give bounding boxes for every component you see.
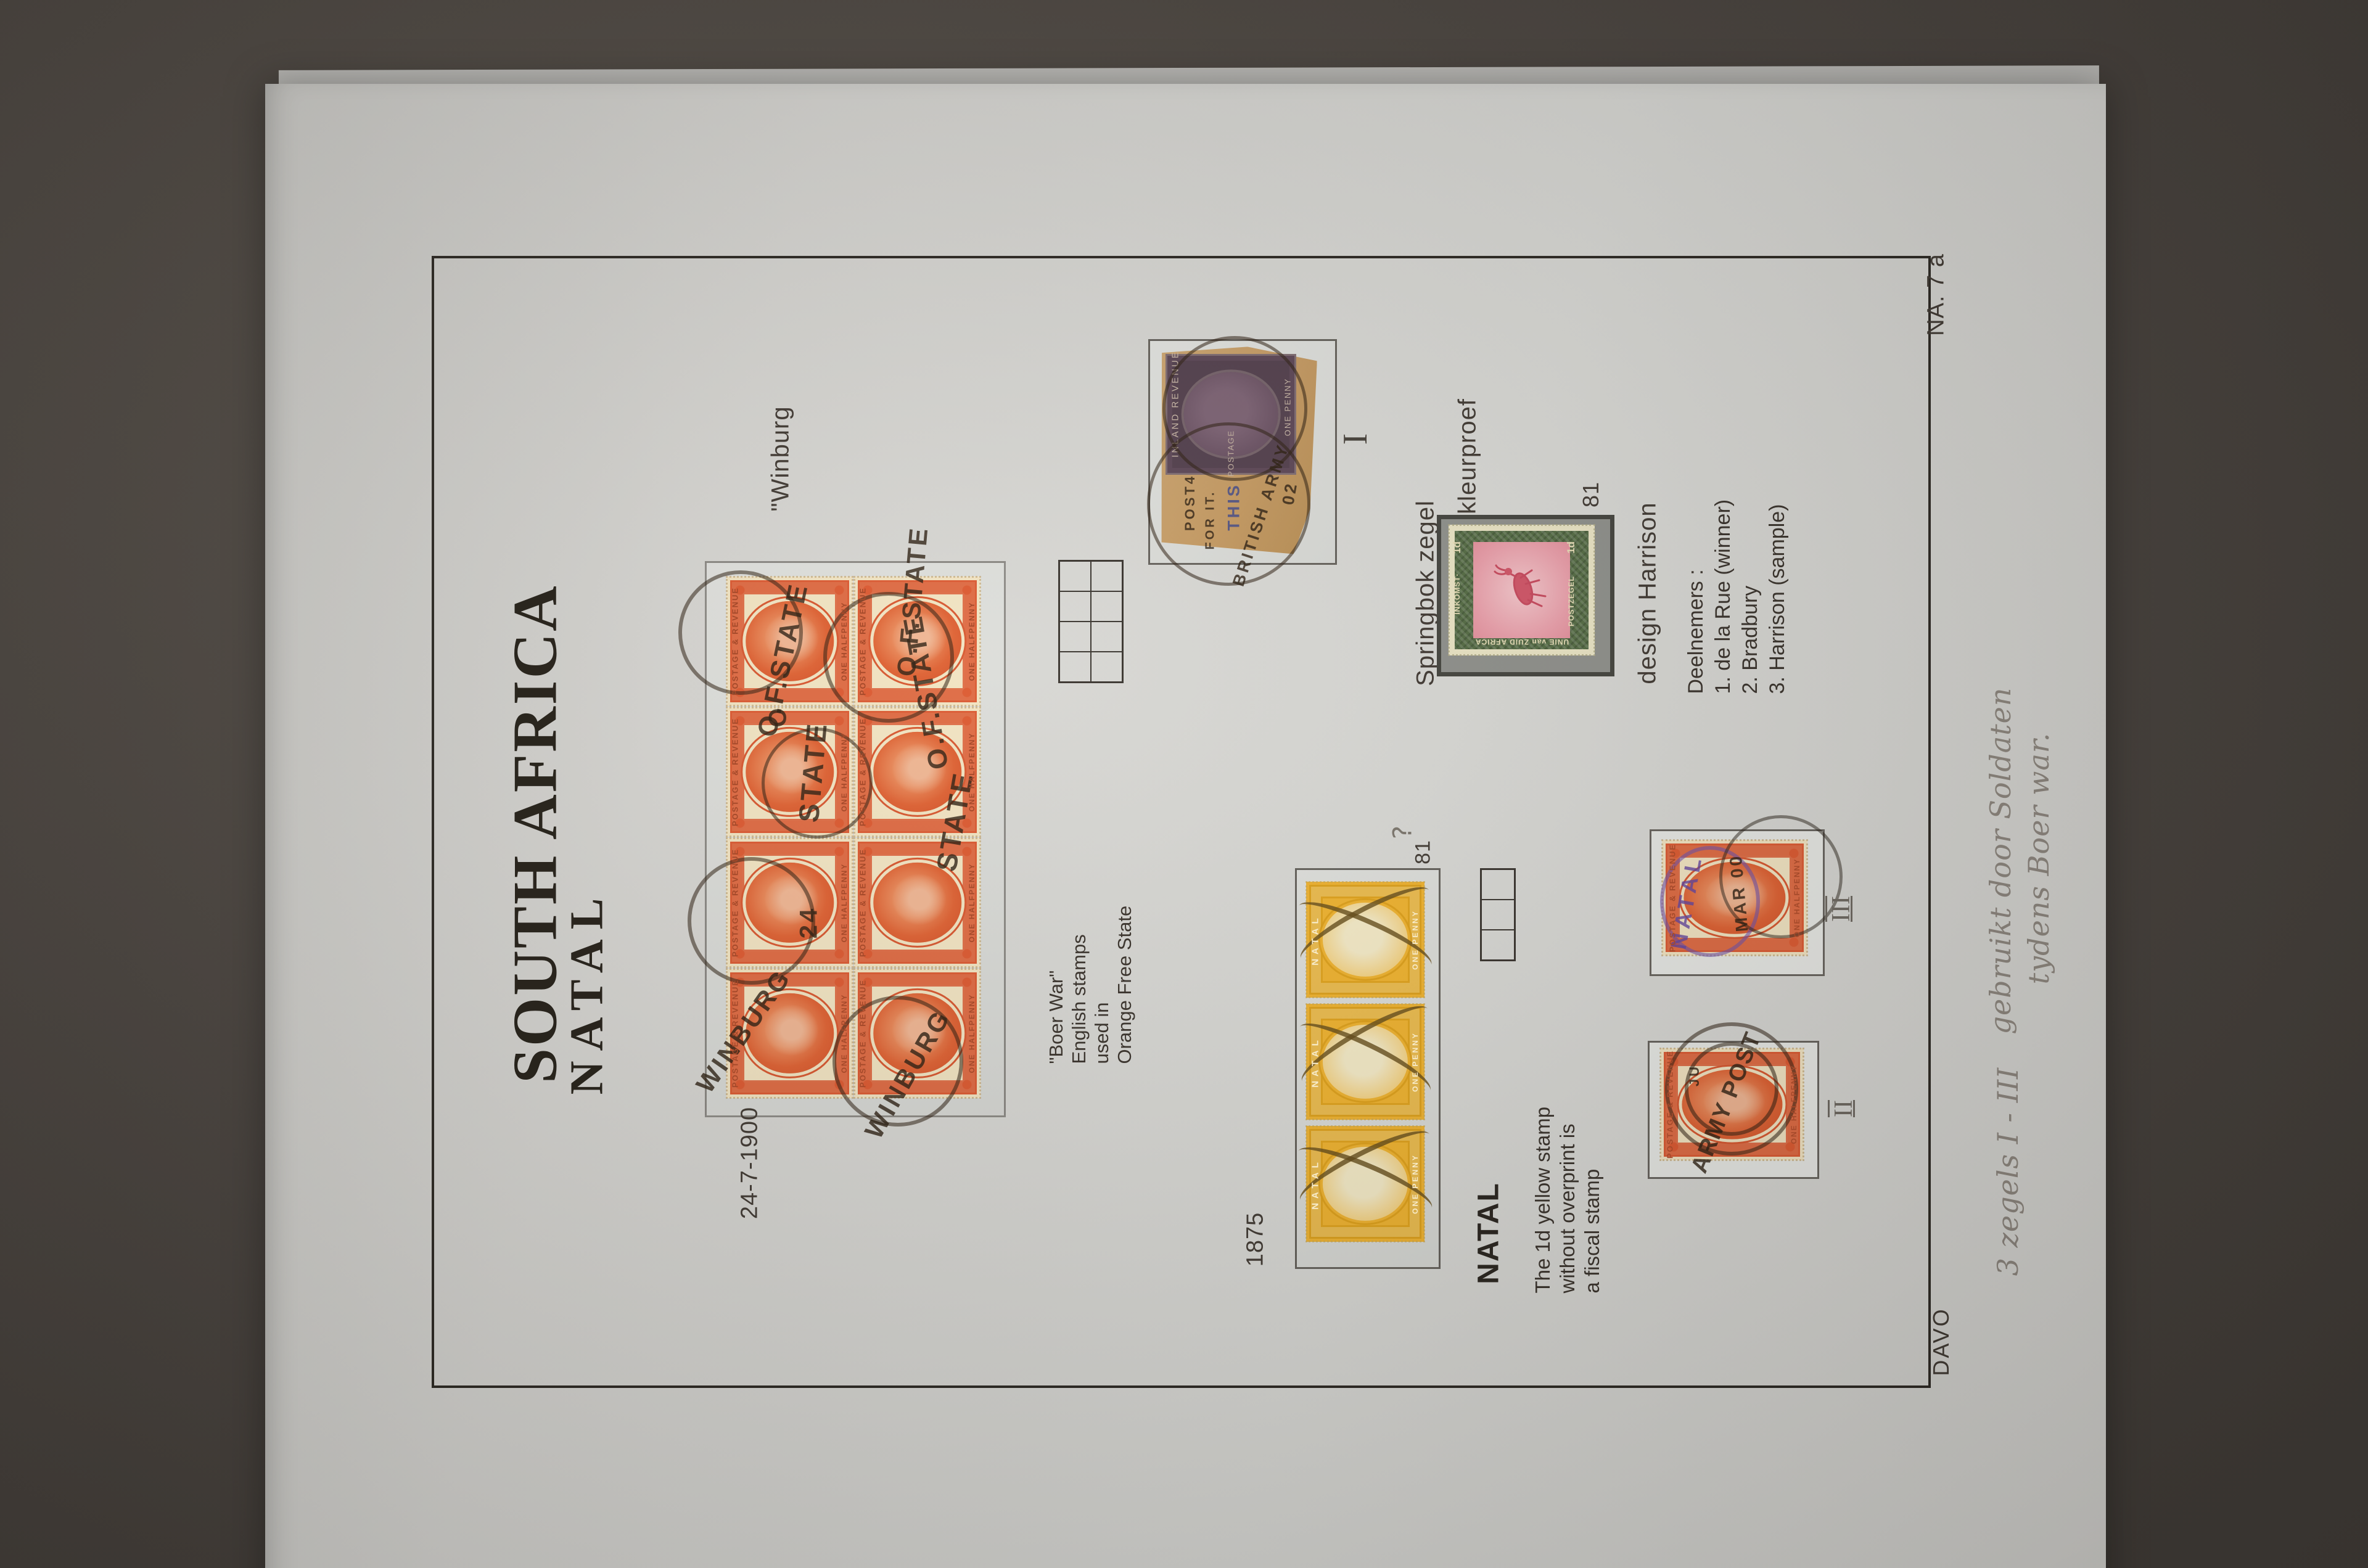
diagram-cell [1091, 622, 1122, 652]
cancel-text: 02 [1278, 480, 1301, 507]
springbok-zegel-label: Springbok zegel [1412, 500, 1440, 686]
cancel-text-blue: THIS [1225, 483, 1244, 531]
qv-inscription-bottom: ONE HALFPENNY [840, 994, 849, 1073]
qv-inscription-bottom: ONE HALFPENNY [1790, 1065, 1798, 1144]
qv-inscription-top: POSTAGE & REVENUE [858, 979, 868, 1088]
qv-inscription-top: POSTAGE & REVENUE [858, 848, 868, 957]
cancel-text: POST4 [1182, 474, 1198, 531]
diagram-cell [1481, 900, 1515, 930]
question-mark-pencil: ? [1387, 826, 1418, 839]
diagram-cell [1091, 561, 1122, 591]
qv-inscription-top: POSTAGE & REVENUE [1666, 1050, 1675, 1159]
yellow-value-text: ONE PENNY [1411, 1154, 1420, 1214]
springbok-bottom-text: UNIE van ZUID AFRICA [1474, 638, 1568, 646]
roman-numeral-ii: II [1829, 1100, 1859, 1117]
diagram-cell [1059, 591, 1091, 622]
qv-inscription-top: POSTAGE & REVENUE [731, 848, 740, 957]
cancel-text: JU [1687, 1064, 1703, 1086]
qv-inscription-bottom: ONE HALFPENNY [968, 733, 976, 812]
fiscal-note-line: without overprint is [1555, 1087, 1580, 1294]
qv-inscription-top: POSTAGE & REVENUE [731, 587, 740, 696]
springbok-right-text: POSTZEGEL [1567, 576, 1576, 626]
diagram-cell [1059, 652, 1091, 682]
springbok-stamp: 1d 1d INKOMST· POSTZEGEL UNIE van ZUID A… [1449, 525, 1595, 655]
diagram-cell [1059, 561, 1091, 591]
qv-inscription-bottom: ONE HALFPENNY [968, 863, 976, 943]
fiscal-note-line: a fiscal stamp [1580, 1087, 1605, 1294]
qv-inscription-top: POSTAGE & REVENUE [1667, 844, 1677, 952]
yellow-country-text: NATAL [1310, 1036, 1321, 1088]
springbok-value-right: 1d [1565, 541, 1577, 554]
qv-inscription-bottom: ONE HALFPENNY [840, 733, 849, 812]
catalog-number-81-strip: 81 [1412, 840, 1436, 864]
qv-inscription-bottom: ONE HALFPENNY [1793, 858, 1801, 938]
yellow-country-text: NATAL [1310, 1158, 1321, 1210]
design-harrison-label: design Harrison [1634, 502, 1662, 684]
deelnemers-heading: Deelnemers : [1682, 488, 1709, 694]
qv-inscription-top: POSTAGE & REVENUE [858, 718, 868, 826]
deelnemers-list: Deelnemers : 1. de la Rue (winner) 2. Br… [1682, 488, 1791, 694]
springbok-left-text: INKOMST· [1453, 573, 1461, 614]
diagram-cell [1059, 622, 1091, 652]
yellow-country-text: NATAL [1310, 914, 1321, 966]
diagram-cell [1481, 869, 1515, 900]
qv-inscription-bottom: ONE HALFPENNY [968, 602, 976, 681]
springbok-stamp-center [1473, 542, 1570, 638]
catalog-number-81: 81 [1578, 482, 1604, 507]
brand-imprint: DAVO [1928, 1307, 1954, 1376]
springbok-value-left: 1d [1451, 541, 1463, 554]
qv-inscription-bottom: ONE HALFPENNY [840, 863, 849, 943]
winburg-label: "Winburg [767, 406, 795, 511]
diagram-cell [1481, 930, 1515, 960]
boer-war-line: used in [1090, 895, 1113, 1064]
diagram-cell [1091, 652, 1122, 682]
page-subtitle: NATAL [561, 889, 614, 1095]
roman-numeral-i: I [1336, 433, 1375, 445]
handwriting-line1-start: 3 zegels I - III [1991, 1067, 2025, 1276]
block-arrangement-diagram [1058, 560, 1124, 683]
diagram-cell [1091, 591, 1122, 622]
handwriting-line2: tydens Boer war. [2022, 733, 2055, 985]
fiscal-note: The 1d yellow stamp without overprint is… [1531, 1087, 1605, 1294]
qv-inscription-top: POSTAGE & REVENUE [858, 587, 868, 696]
boer-war-line: English stamps [1067, 895, 1090, 1064]
deelnemers-item: 2. Bradbury [1737, 488, 1764, 694]
fiscal-note-line: The 1d yellow stamp [1531, 1087, 1555, 1294]
yellow-value-text: ONE PENNY [1411, 1032, 1420, 1092]
qv-inscription-top: POSTAGE & REVENUE [731, 979, 740, 1088]
kleurproef-label: kleurproef [1454, 398, 1482, 514]
deelnemers-item: 1. de la Rue (winner) [1709, 488, 1737, 694]
roman-numeral-iii: III [1827, 896, 1856, 922]
page-code: NA. 7 a [1923, 253, 1950, 336]
springbok-figure [1485, 559, 1559, 621]
qv-inscription-bottom: ONE HALFPENNY [968, 994, 976, 1073]
cancel-text: 24 [795, 906, 823, 939]
strip-arrangement-diagram [1480, 868, 1516, 961]
boer-war-line: "Boer War" [1045, 895, 1067, 1064]
deelnemers-item: 3. Harrison (sample) [1764, 488, 1791, 694]
boer-war-line: Orange Free State [1113, 895, 1136, 1064]
date-label: 24-7-1900 [737, 1107, 763, 1219]
yellow-value-text: ONE PENNY [1411, 909, 1420, 970]
year-label: 1875 [1243, 1212, 1269, 1267]
natal-heading: NATAL [1472, 1182, 1506, 1284]
qv-inscription-bottom: ONE HALFPENNY [840, 602, 849, 681]
handwriting-line1-end: gebruikt door Soldaten [1984, 688, 2017, 1035]
qv-inscription-top: POSTAGE & REVENUE [731, 718, 740, 826]
cancel-text: O [765, 705, 792, 727]
cancel-text: FOR IT. [1204, 490, 1218, 550]
photo-backdrop: SOUTH AFRICA NATAL "Winburg NA. 7 a DAVO… [0, 0, 2368, 1568]
boer-war-note: "Boer War" English stamps used in Orange… [1045, 895, 1136, 1064]
